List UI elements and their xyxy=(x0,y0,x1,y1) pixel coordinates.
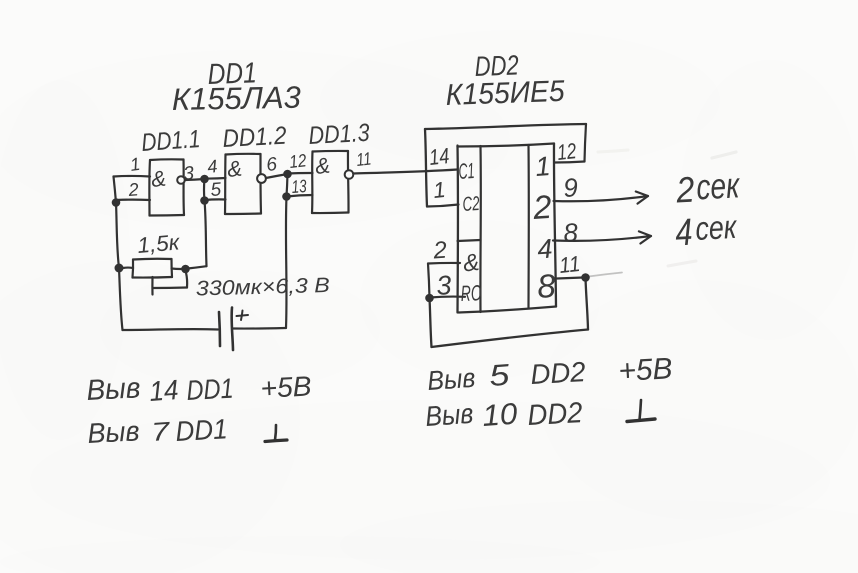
svg-text:К155ИЕ5: К155ИЕ5 xyxy=(445,75,565,112)
svg-text:13: 13 xyxy=(291,176,307,197)
svg-text:10: 10 xyxy=(481,398,519,433)
svg-text:5: 5 xyxy=(488,359,511,393)
svg-text:DD2: DD2 xyxy=(527,397,584,432)
svg-text:Выв: Выв xyxy=(86,372,142,407)
svg-text:DD2: DD2 xyxy=(530,356,587,390)
svg-text:+5В: +5В xyxy=(618,352,674,388)
svg-text:1,5к: 1,5к xyxy=(136,229,182,258)
svg-text:&: & xyxy=(462,249,481,278)
svg-text:2: 2 xyxy=(531,188,553,226)
svg-text:&: & xyxy=(150,166,167,192)
svg-text:12: 12 xyxy=(556,138,578,165)
svg-text:330мк×6,3 В: 330мк×6,3 В xyxy=(196,274,331,300)
svg-text:4: 4 xyxy=(674,212,693,255)
svg-text:сек: сек xyxy=(695,164,742,207)
svg-text:сек: сек xyxy=(694,208,738,247)
svg-text:11: 11 xyxy=(355,149,372,170)
svg-text:1: 1 xyxy=(432,177,447,203)
svg-text:1: 1 xyxy=(534,151,551,182)
svg-text:DD1.2: DD1.2 xyxy=(222,122,287,153)
svg-text:14: 14 xyxy=(148,374,179,407)
svg-text:2: 2 xyxy=(432,237,448,265)
svg-text:DD1.1: DD1.1 xyxy=(140,125,201,157)
svg-text:DD1.3: DD1.3 xyxy=(308,119,370,150)
svg-text:2: 2 xyxy=(674,169,695,211)
svg-text:9: 9 xyxy=(562,172,579,203)
svg-text:DD1: DD1 xyxy=(175,413,229,447)
svg-text:4: 4 xyxy=(536,234,553,265)
svg-text:14: 14 xyxy=(428,143,451,170)
svg-text:11: 11 xyxy=(558,251,581,278)
svg-text:4: 4 xyxy=(206,156,218,177)
svg-text:Выв: Выв xyxy=(87,415,141,449)
svg-text:5: 5 xyxy=(210,179,222,201)
svg-text:&: & xyxy=(314,153,331,179)
svg-text:Выв: Выв xyxy=(424,398,474,432)
svg-text:Выв: Выв xyxy=(426,363,476,396)
svg-text:8: 8 xyxy=(562,217,579,248)
svg-text:C2: C2 xyxy=(462,193,480,216)
svg-text:К155ЛА3: К155ЛА3 xyxy=(172,80,302,117)
svg-text:2: 2 xyxy=(127,179,139,200)
svg-text:12: 12 xyxy=(288,150,307,172)
svg-text:&: & xyxy=(226,156,243,182)
svg-text:RO: RO xyxy=(460,280,482,306)
svg-text:+5В: +5В xyxy=(260,370,313,404)
svg-text:8: 8 xyxy=(536,267,558,305)
svg-text:C1: C1 xyxy=(458,158,476,184)
svg-text:3: 3 xyxy=(435,270,452,301)
svg-text:DD1: DD1 xyxy=(186,373,235,406)
